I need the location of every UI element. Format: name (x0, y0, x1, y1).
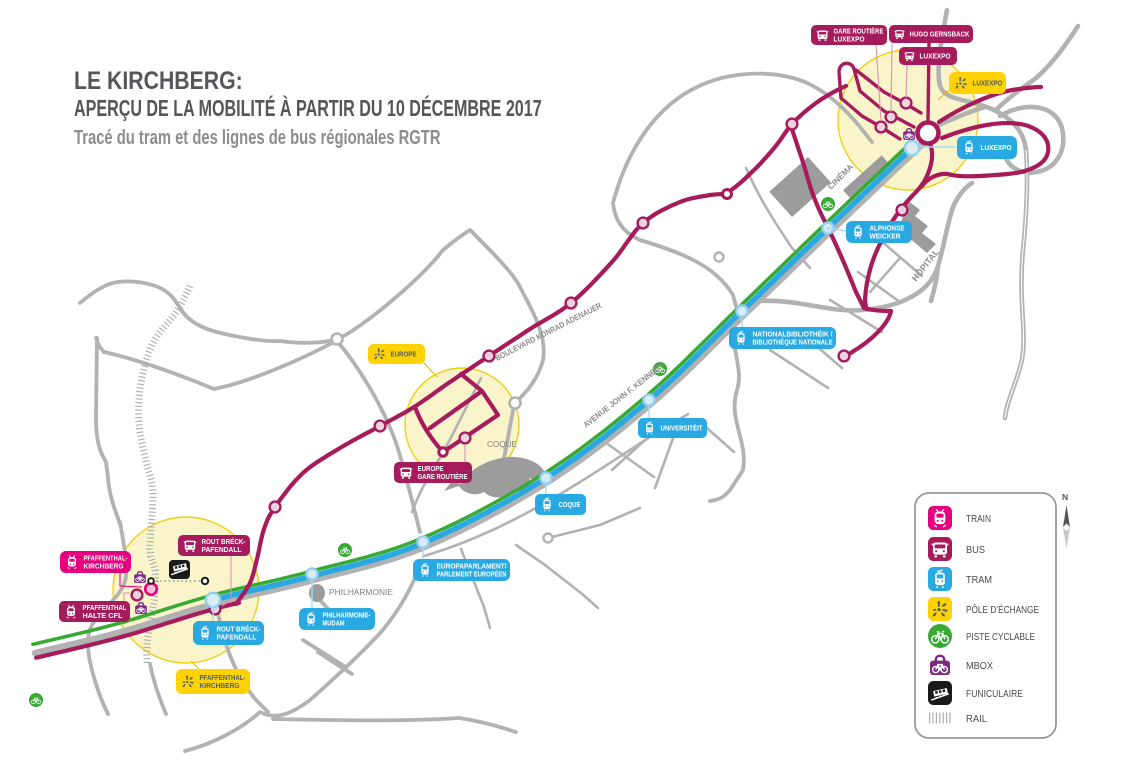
svg-text:LUXEXPO: LUXEXPO (834, 37, 866, 44)
svg-text:RAIL: RAIL (966, 714, 987, 725)
svg-text:WEICKER: WEICKER (870, 234, 901, 241)
svg-text:LUXEXPO: LUXEXPO (920, 54, 952, 61)
svg-text:MUDAM: MUDAM (323, 621, 345, 628)
svg-text:COQUE: COQUE (487, 440, 517, 449)
svg-text:PARLEMENT EUROPÉEN: PARLEMENT EUROPÉEN (437, 570, 507, 579)
svg-text:PISTE CYCLABLE: PISTE CYCLABLE (966, 632, 1035, 643)
svg-text:LE KIRCHBERG:: LE KIRCHBERG: (74, 66, 243, 94)
svg-text:EUROPE: EUROPE (418, 466, 444, 473)
svg-text:KIRCHBERG: KIRCHBERG (84, 564, 125, 571)
svg-text:PFAFFENTHAL-: PFAFFENTHAL- (84, 555, 129, 562)
svg-text:BUS: BUS (966, 545, 985, 556)
svg-text:GARE ROUTIÈRE: GARE ROUTIÈRE (834, 26, 884, 35)
svg-text:COQUE: COQUE (559, 502, 581, 509)
svg-text:BIBLIOTHÈQUE NATIONALE: BIBLIOTHÈQUE NATIONALE (753, 338, 833, 347)
svg-text:N: N (1062, 492, 1068, 502)
svg-text:TRAM: TRAM (966, 575, 992, 586)
svg-text:APERÇU DE LA MOBILITÉ À PARTIR: APERÇU DE LA MOBILITÉ À PARTIR DU 10 DÉC… (74, 95, 542, 122)
svg-text:LUXEXPO: LUXEXPO (973, 81, 1003, 88)
svg-text:PAFENDALL: PAFENDALL (202, 547, 243, 554)
svg-text:ROUT BRÉCK-: ROUT BRÉCK- (217, 624, 262, 633)
svg-text:Tracé du tram et des lignes de: Tracé du tram et des lignes de bus régio… (74, 126, 441, 149)
svg-text:ROUT BRÉCK-: ROUT BRÉCK- (202, 537, 247, 546)
svg-text:KIRCHBERG: KIRCHBERG (200, 683, 241, 690)
svg-text:NATIONALBIBLIOTHÉIK /: NATIONALBIBLIOTHÉIK / (753, 329, 833, 338)
svg-text:ALPHONSE: ALPHONSE (870, 225, 905, 232)
svg-text:TRAIN: TRAIN (966, 514, 991, 525)
svg-text:EUROPE: EUROPE (391, 352, 417, 359)
svg-text:PFAFFENTHAL: PFAFFENTHAL (83, 605, 128, 612)
svg-text:FUNICULAIRE: FUNICULAIRE (966, 689, 1023, 700)
svg-text:LUXEXPO: LUXEXPO (981, 145, 1013, 152)
svg-text:HUGO GERNSBACK: HUGO GERNSBACK (910, 32, 970, 39)
svg-text:HALTE CFL: HALTE CFL (83, 613, 124, 620)
svg-text:MBOX: MBOX (966, 661, 993, 672)
svg-text:PHILHARMONIE: PHILHARMONIE (329, 588, 393, 597)
svg-text:UNIVERSITÉIT: UNIVERSITÉIT (661, 424, 704, 433)
svg-text:PFAFFENTHAL-: PFAFFENTHAL- (200, 675, 247, 682)
svg-text:GARE ROUTIÈRE: GARE ROUTIÈRE (418, 472, 468, 481)
svg-text:PÔLE D’ÉCHANGE: PÔLE D’ÉCHANGE (966, 603, 1039, 616)
svg-text:EUROPAPARLAMENT/: EUROPAPARLAMENT/ (437, 563, 507, 570)
svg-text:PHILHARMONIE-: PHILHARMONIE- (323, 612, 372, 619)
svg-text:PAFENDALL: PAFENDALL (217, 635, 258, 642)
